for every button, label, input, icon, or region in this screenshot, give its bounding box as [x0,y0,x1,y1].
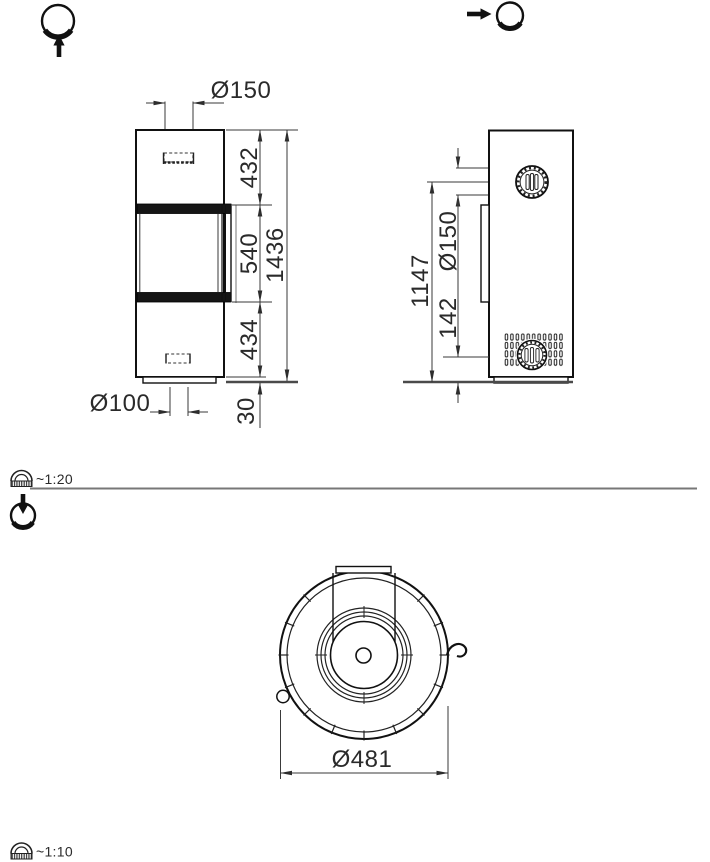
scale-upper-label: ~1:20 [36,471,73,487]
top-view-direction-icon [11,494,35,528]
dim-top-body-diameter: Ø481 [332,746,393,773]
dim-side-vent-center-height: 142 [435,297,462,339]
side-flue-outlet [516,166,548,198]
front-view: Ø150 432 540 434 1436 30 Ø100 [90,77,298,428]
side-vent-grille [504,333,563,371]
dim-front-inlet-diameter: Ø100 [90,390,151,417]
top-hinge-knob [277,690,289,702]
dim-side-flue-diameter: Ø150 [435,211,462,272]
side-door-edge [481,205,489,302]
scale-row-upper: ~1:20 [11,471,697,489]
scale-lower-label: ~1:10 [36,844,73,860]
dim-front-window: 540 [236,233,263,275]
front-body-outline [136,130,224,377]
dim-front-bottom-section: 434 [236,319,263,361]
protractor-icon [11,471,32,487]
dim-front-total-height: 1436 [262,227,289,282]
protractor-icon [11,843,32,859]
technical-drawing-page: Ø150 432 540 434 1436 30 Ø100 [0,0,710,862]
front-plinth [143,377,216,383]
side-dimensions: Ø150 1147 142 [407,148,489,403]
side-view-direction-icon [467,3,523,29]
front-view-direction-icon [42,5,74,57]
dim-front-plinth-height: 30 [233,397,260,425]
dim-front-top-section: 432 [236,147,263,189]
stove-dimension-drawing: Ø150 432 540 434 1436 30 Ø100 [0,0,710,862]
top-view: Ø481 [277,567,466,780]
side-view: Ø150 1147 142 [403,131,573,404]
dim-side-flue-center-height: 1147 [407,254,434,308]
top-door-handle [447,644,466,656]
scale-row-lower: ~1:10 [11,843,73,860]
top-center-knob [356,648,371,663]
dim-front-flue-diameter: Ø150 [211,77,272,104]
